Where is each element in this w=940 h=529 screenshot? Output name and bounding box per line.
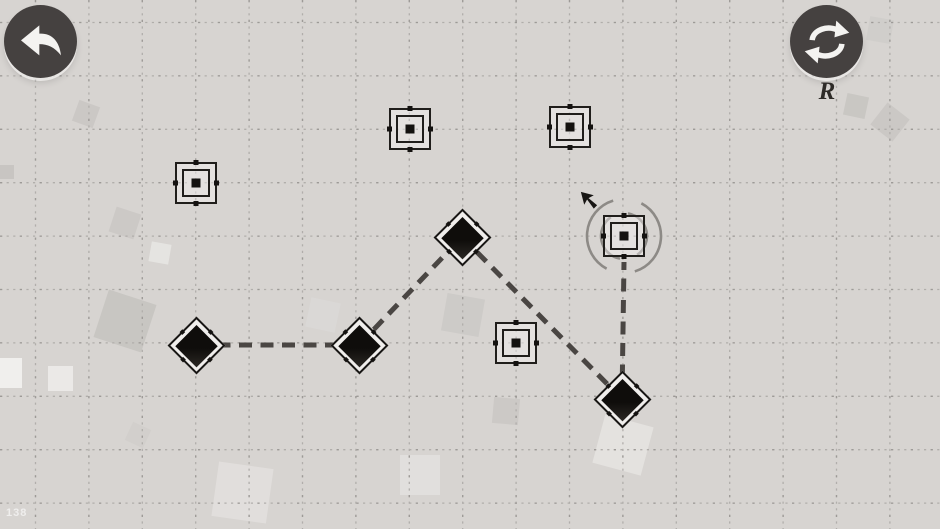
- node-tick: [633, 410, 639, 416]
- node-tick: [605, 410, 611, 416]
- diamond-node[interactable]: [167, 316, 225, 374]
- target-socket: [495, 322, 537, 364]
- target-tick: [514, 361, 519, 366]
- target-tick: [214, 181, 219, 186]
- node-tick: [473, 220, 479, 226]
- watermark: 138: [6, 507, 27, 519]
- target-tick: [387, 127, 392, 132]
- target-tick: [194, 201, 199, 206]
- target-tick: [493, 341, 498, 346]
- target-socket: [389, 108, 431, 150]
- target-tick: [601, 234, 606, 239]
- target-tick: [428, 127, 433, 132]
- target-tick: [408, 106, 413, 111]
- target-socket: [603, 215, 645, 257]
- target-tick: [514, 320, 519, 325]
- diamond-node[interactable]: [433, 208, 491, 266]
- target-tick: [568, 145, 573, 150]
- target-center-dot: [512, 339, 521, 348]
- target-center-dot: [406, 125, 415, 134]
- node-tick: [179, 356, 185, 362]
- restart-button[interactable]: [790, 5, 863, 78]
- target-socket: [549, 106, 591, 148]
- node-tick: [605, 382, 611, 388]
- undo-arrow-icon: [16, 20, 66, 64]
- restart-key-hint: R: [808, 78, 846, 106]
- node-tick: [370, 328, 376, 334]
- target-center-dot: [620, 232, 629, 241]
- target-center-dot: [566, 123, 575, 132]
- target-tick: [534, 341, 539, 346]
- node-tick: [342, 328, 348, 334]
- node-tick: [342, 356, 348, 362]
- target-tick: [642, 234, 647, 239]
- target-tick: [622, 254, 627, 259]
- game-stage: R 138: [0, 0, 940, 529]
- restart-cycle-icon: [801, 16, 853, 68]
- target-tick: [173, 181, 178, 186]
- node-tick: [370, 356, 376, 362]
- target-center-dot: [192, 179, 201, 188]
- pieces-layer: [0, 0, 940, 529]
- diamond-node[interactable]: [593, 370, 651, 428]
- target-tick: [547, 125, 552, 130]
- node-tick: [179, 328, 185, 334]
- target-tick: [194, 160, 199, 165]
- target-tick: [408, 147, 413, 152]
- diamond-node[interactable]: [330, 316, 388, 374]
- node-tick: [473, 248, 479, 254]
- target-tick: [622, 213, 627, 218]
- target-socket: [175, 162, 217, 204]
- target-tick: [588, 125, 593, 130]
- target-tick: [568, 104, 573, 109]
- node-tick: [207, 356, 213, 362]
- node-tick: [633, 382, 639, 388]
- node-tick: [445, 248, 451, 254]
- cursor-arrow-icon: [578, 189, 600, 216]
- node-tick: [445, 220, 451, 226]
- node-tick: [207, 328, 213, 334]
- undo-button[interactable]: [4, 5, 77, 78]
